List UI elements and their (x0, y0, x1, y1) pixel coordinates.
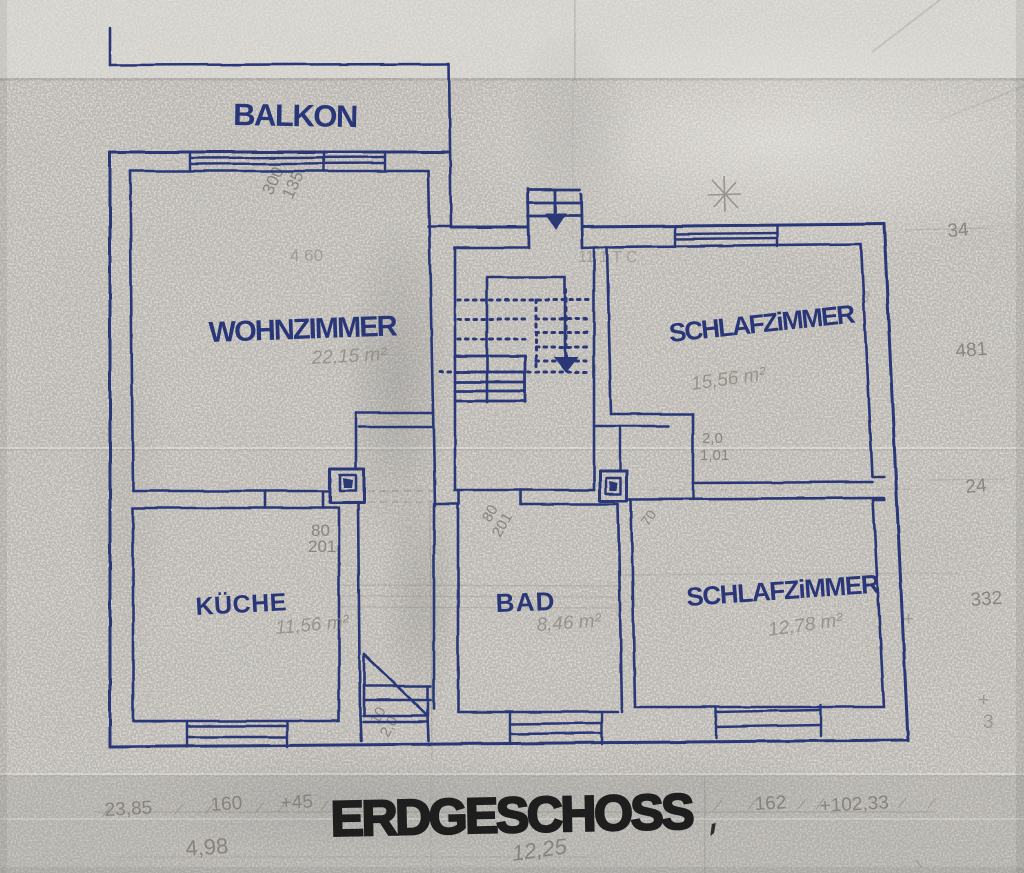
svg-text:+: + (903, 609, 914, 630)
svg-text:KÜCHE: KÜCHE (195, 587, 288, 621)
svg-text:ERDGESCHOSS: ERDGESCHOSS (330, 783, 694, 847)
svg-text:1,01: 1,01 (700, 447, 729, 464)
svg-text:+: + (978, 690, 989, 711)
svg-text:481: 481 (955, 339, 988, 362)
svg-text:23,85: 23,85 (104, 798, 153, 821)
svg-text:3: 3 (983, 712, 994, 733)
svg-text:160: 160 (210, 793, 243, 816)
svg-text:332: 332 (970, 588, 1003, 611)
svg-text:34: 34 (947, 219, 970, 242)
svg-text:BALKON: BALKON (233, 97, 357, 134)
svg-text:WOHNZIMMER: WOHNZIMMER (208, 310, 398, 349)
svg-text:4,98: 4,98 (185, 833, 229, 861)
svg-text:24: 24 (965, 475, 988, 498)
svg-text:+102,33: +102,33 (819, 792, 889, 817)
svg-text:2,0: 2,0 (702, 430, 723, 447)
svg-text:162: 162 (754, 792, 787, 815)
svg-text:BAD: BAD (495, 586, 556, 618)
svg-text:22,15 m²: 22,15 m² (310, 344, 388, 369)
svg-text:4 60: 4 60 (290, 246, 323, 265)
svg-text:201: 201 (308, 537, 336, 556)
